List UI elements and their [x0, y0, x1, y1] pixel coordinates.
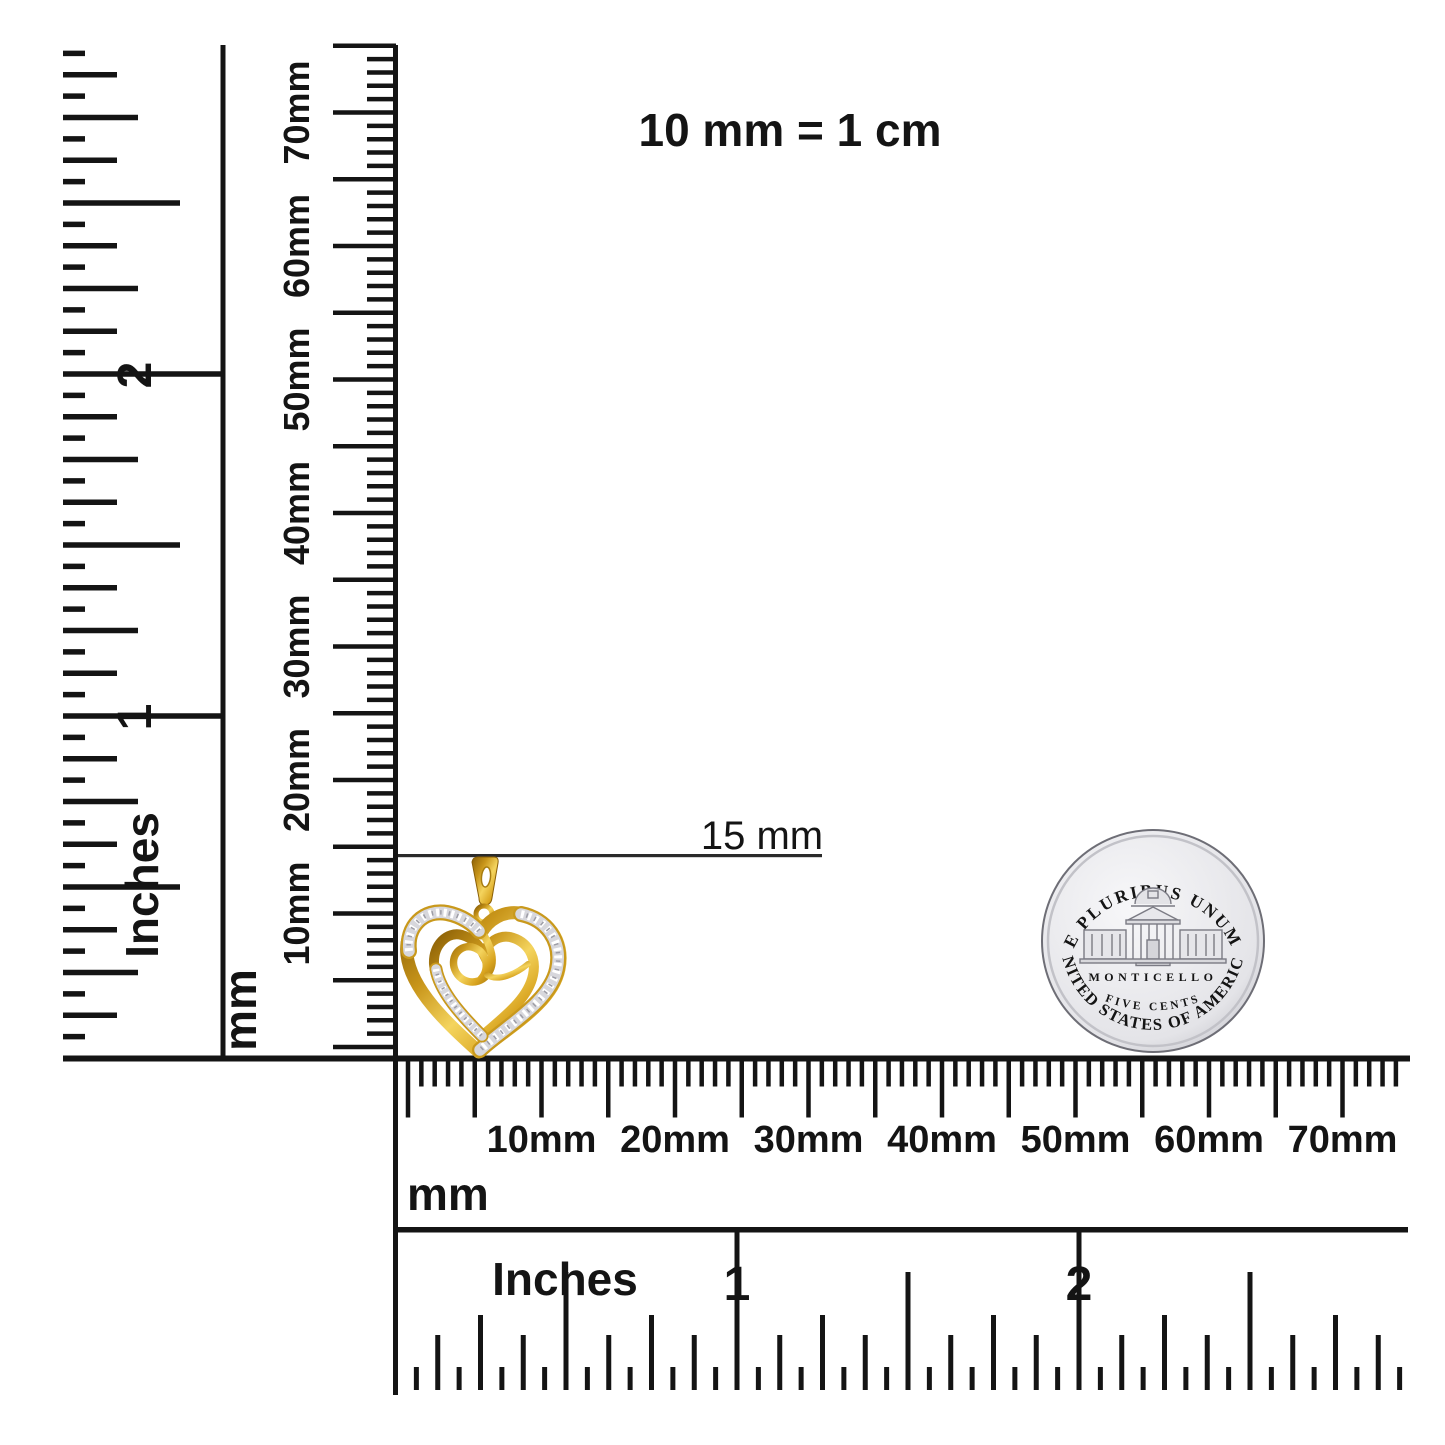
bottom-inches-number: 1 — [724, 1258, 751, 1311]
rulers: 1210mm20mm30mm40mm50mm60mm70mm10mm20mm30… — [63, 46, 1400, 1390]
left-mm-tick-label: 60mm — [276, 194, 317, 298]
coin-image: E PLURIBUS UNUM MONTICELLO — [1033, 813, 1264, 1052]
coin-building-label: MONTICELLO — [1088, 970, 1217, 984]
mm-ruler-baseline — [63, 1056, 1410, 1062]
bottom-mm-tick-label: 30mm — [754, 1119, 864, 1161]
left-mm-tick-label: 20mm — [276, 728, 317, 832]
measurement-label: 15 mm — [701, 814, 823, 858]
bottom-mm-tick-label: 40mm — [887, 1119, 997, 1161]
left-inches-number: 1 — [109, 704, 162, 731]
bottom-mm-tick-label: 50mm — [1021, 1119, 1131, 1161]
bottom-mm-tick-label: 70mm — [1288, 1119, 1398, 1161]
bottom-inches-number: 2 — [1066, 1258, 1093, 1311]
left-inches-number: 2 — [109, 362, 162, 389]
bottom-mm-tick-label: 20mm — [620, 1119, 730, 1161]
left-mm-unit-label: mm — [214, 969, 266, 1051]
bottom-mm-tick-label: 60mm — [1154, 1119, 1264, 1161]
bottom-mm-unit-label: mm — [407, 1168, 489, 1220]
left-mm-ruler-edge — [393, 45, 398, 1395]
scale-note: 10 mm = 1 cm — [638, 104, 941, 156]
bottom-inches-unit-label: Inches — [492, 1253, 638, 1305]
product-sizing-image: 1210mm20mm30mm40mm50mm60mm70mm10mm20mm30… — [0, 0, 1445, 1445]
pendant-image — [407, 857, 560, 1052]
left-mm-tick-label: 40mm — [276, 461, 317, 565]
scene: 1210mm20mm30mm40mm50mm60mm70mm10mm20mm30… — [0, 0, 1445, 1445]
left-inches-unit-label: Inches — [116, 812, 168, 958]
bottom-mm-tick-label: 10mm — [487, 1119, 597, 1161]
left-mm-tick-label: 30mm — [276, 594, 317, 698]
left-mm-tick-label: 10mm — [276, 861, 317, 965]
left-mm-tick-label: 70mm — [276, 60, 317, 164]
left-inches-ruler-edge — [221, 45, 226, 1058]
left-mm-tick-label: 50mm — [276, 327, 317, 431]
bottom-inches-ruler-topline — [393, 1227, 1408, 1233]
